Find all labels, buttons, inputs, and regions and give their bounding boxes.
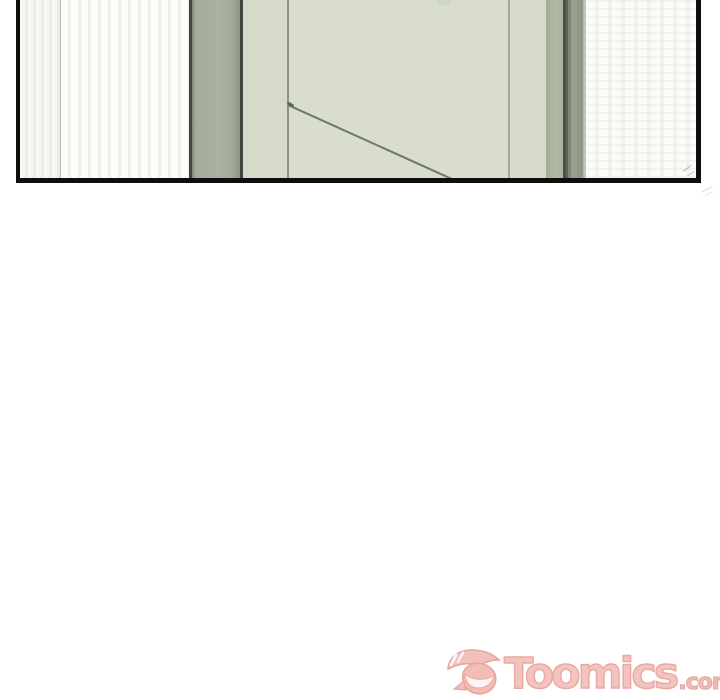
comic-panel-artwork	[20, 0, 696, 178]
white-curtain-right	[586, 0, 696, 178]
curtain-striped-band-left	[20, 0, 61, 178]
door-panel-right-strip	[510, 0, 546, 178]
toomics-mascot-icon	[446, 648, 502, 695]
sage-wall-band	[192, 0, 240, 178]
webtoon-page: Toomics .com	[0, 0, 720, 700]
toomics-brand-text: Toomics	[504, 653, 676, 696]
white-curtain-left	[61, 0, 189, 178]
sketch-mark	[705, 191, 713, 195]
door-panel-main	[289, 0, 508, 178]
comic-panel	[16, 0, 701, 183]
door-panel-left-strip	[243, 0, 287, 178]
gray-green-jamb	[566, 0, 583, 178]
sage-jamb-strip	[546, 0, 563, 178]
clipped-detail-smudge	[437, 0, 451, 5]
toomics-domain-suffix: .com	[678, 672, 720, 694]
toomics-watermark: Toomics .com	[446, 642, 714, 696]
